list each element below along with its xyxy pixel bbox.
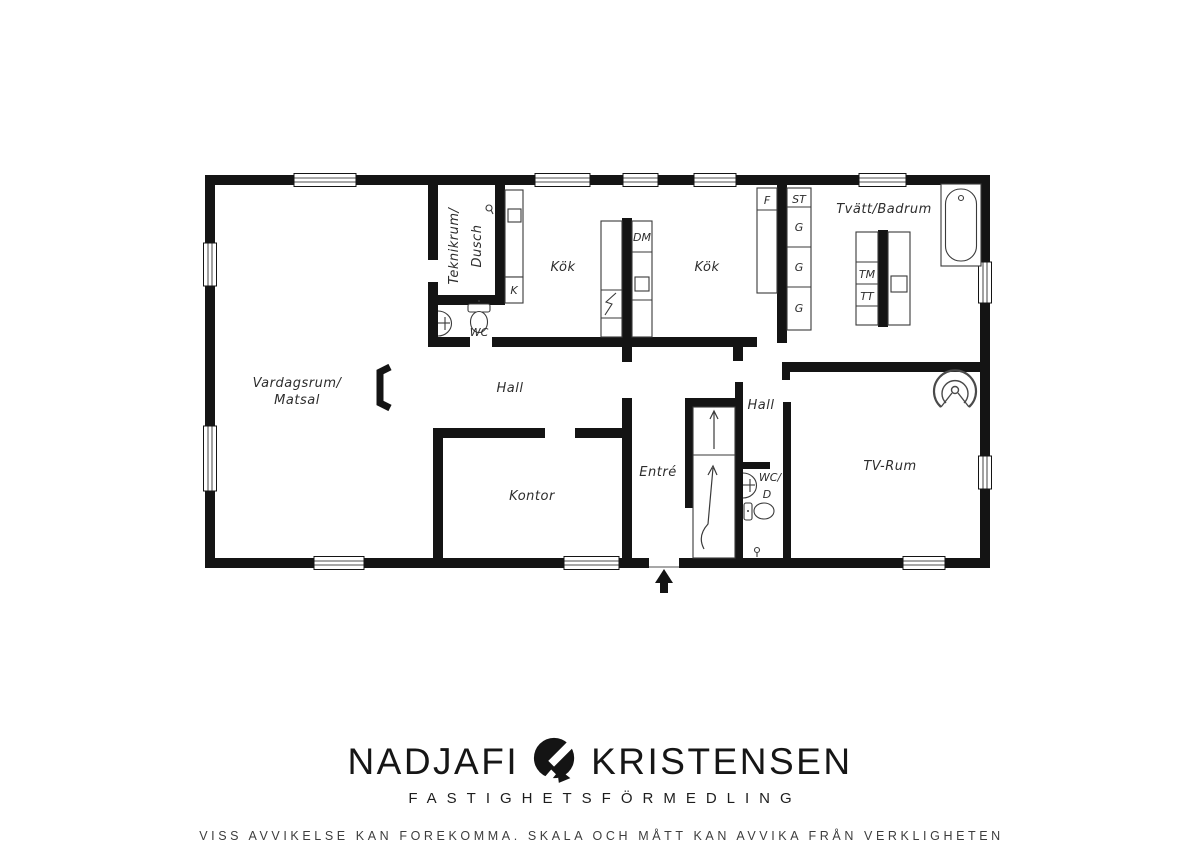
sink-icon bbox=[743, 473, 757, 498]
brand-name-first: NADJAFI bbox=[347, 743, 519, 780]
floor-drain-icon bbox=[755, 548, 760, 558]
brand-logo-icon bbox=[532, 733, 578, 783]
doorway-jamb bbox=[380, 367, 390, 408]
brand-logo: NADJAFI KRISTENSEN bbox=[0, 733, 1200, 780]
fixture-label-washing-machine: TM bbox=[859, 268, 876, 281]
window bbox=[623, 174, 658, 187]
fireplace-icon bbox=[934, 370, 976, 407]
footer: NADJAFI KRISTENSEN FASTIGHETSFÖRMEDLING … bbox=[0, 733, 1200, 843]
fixture-labels: DM K F ST G G G TM TT bbox=[510, 193, 875, 315]
fixture-label-dryer: TT bbox=[860, 290, 875, 303]
fixture-label-dishwasher: DM bbox=[633, 231, 651, 244]
room-label-wc: WC bbox=[470, 326, 489, 339]
room-label-hall-left: Hall bbox=[497, 381, 524, 396]
fixture-label-fridge: K bbox=[510, 284, 518, 297]
room-label-entry: Entré bbox=[639, 465, 676, 480]
sink-icon bbox=[635, 277, 649, 291]
window bbox=[204, 243, 217, 286]
room-label-laundry-bathroom: Tvätt/Badrum bbox=[836, 202, 932, 217]
window bbox=[314, 557, 364, 570]
fixture-label-wardrobe-2: G bbox=[795, 261, 804, 274]
brand-subtitle: FASTIGHETSFÖRMEDLING bbox=[0, 790, 1200, 807]
window bbox=[204, 426, 217, 491]
room-label-livingroom-2: Matsal bbox=[274, 393, 320, 408]
fixture-label-wardrobe-3: G bbox=[795, 302, 804, 315]
entrance-door-opening bbox=[649, 556, 679, 570]
room-label-hall-right: Hall bbox=[748, 398, 775, 413]
window bbox=[979, 262, 992, 303]
fixture-label-wardrobe-1: G bbox=[795, 221, 804, 234]
brand-name-second: KRISTENSEN bbox=[591, 743, 852, 780]
window bbox=[535, 174, 590, 187]
room-labels: Vardagsrum/ Matsal Teknikrum/ Dusch WC K… bbox=[253, 202, 932, 504]
staircase bbox=[693, 407, 735, 558]
room-label-kitchen-left: Kök bbox=[550, 260, 575, 275]
floorplan-page: Vardagsrum/ Matsal Teknikrum/ Dusch WC K… bbox=[0, 0, 1200, 848]
wc2-fixtures bbox=[743, 473, 774, 557]
room-label-tv-room: TV-Rum bbox=[863, 459, 916, 474]
window bbox=[564, 557, 619, 570]
room-label-office: Kontor bbox=[509, 489, 556, 504]
entrance-arrow-icon bbox=[655, 569, 673, 593]
room-label-livingroom: Vardagsrum/ bbox=[253, 376, 343, 391]
room-label-techroom-2: Dusch bbox=[470, 225, 485, 268]
window bbox=[903, 557, 945, 570]
window bbox=[859, 174, 906, 187]
room-label-kitchen-right: Kök bbox=[694, 260, 719, 275]
disclaimer-text: VISS AVVIKELSE KAN FOREKOMMA. SKALA OCH … bbox=[0, 829, 1200, 843]
window bbox=[979, 456, 992, 489]
floor-drain-icon bbox=[486, 205, 493, 214]
sink-icon bbox=[891, 276, 907, 292]
fixture-label-cleaning-cabinet: ST bbox=[792, 193, 807, 206]
window bbox=[294, 174, 356, 187]
room-label-wc2-2: D bbox=[763, 488, 771, 501]
room-label-wc2: WC/ bbox=[759, 471, 783, 484]
floorplan-drawing: Vardagsrum/ Matsal Teknikrum/ Dusch WC K… bbox=[0, 0, 1200, 690]
fixture-label-freezer: F bbox=[764, 194, 771, 207]
room-label-techroom: Teknikrum/ bbox=[447, 206, 462, 284]
toilet-icon bbox=[744, 503, 774, 520]
window bbox=[694, 174, 736, 187]
bathtub-icon bbox=[941, 184, 981, 266]
sink-icon bbox=[438, 311, 452, 336]
